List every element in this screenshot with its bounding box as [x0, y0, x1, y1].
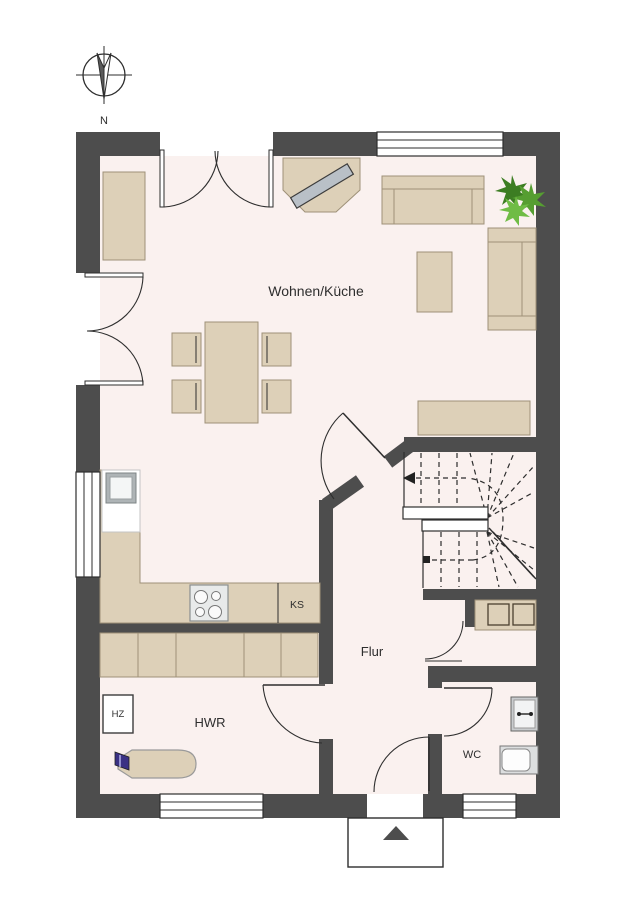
- sideboard-stairs-icon: [418, 401, 530, 435]
- floorplan-drawing: N: [0, 0, 636, 900]
- heater-label: HZ: [112, 709, 125, 720]
- coffee-table-icon: [417, 252, 452, 312]
- sofa-right-icon: [488, 228, 536, 330]
- ironing-board-icon: [115, 750, 196, 778]
- wc-sink-icon: [511, 697, 538, 731]
- chair-icon: [262, 380, 291, 413]
- window-icon: [160, 794, 263, 818]
- room-label-living-kitchen: Wohnen/Küche: [268, 283, 364, 299]
- sideboard-icon: [103, 172, 145, 260]
- compass-icon: [76, 46, 132, 104]
- window-icon: [377, 132, 503, 156]
- chair-icon: [262, 333, 291, 366]
- cabinet-row-icon: [100, 633, 318, 677]
- stair-start-marker: [423, 556, 430, 563]
- floorplan-page: N: [0, 0, 636, 900]
- chair-icon: [172, 380, 201, 413]
- room-label-utility: HWR: [194, 715, 225, 730]
- understair-cabinet-icon: [475, 600, 536, 630]
- window-icon: [463, 794, 516, 818]
- dining-table-icon: [205, 322, 258, 423]
- room-label-wc: WC: [463, 749, 481, 761]
- room-label-hall: Flur: [361, 644, 384, 659]
- fridge-label: KS: [290, 599, 304, 611]
- entrance-porch: [348, 818, 443, 867]
- floor-area: [100, 156, 536, 794]
- window-icon: [76, 472, 100, 577]
- chair-icon: [172, 333, 201, 366]
- toilet-icon: [500, 746, 538, 774]
- compass-north-label: N: [100, 115, 108, 127]
- sofa-icon: [382, 176, 484, 224]
